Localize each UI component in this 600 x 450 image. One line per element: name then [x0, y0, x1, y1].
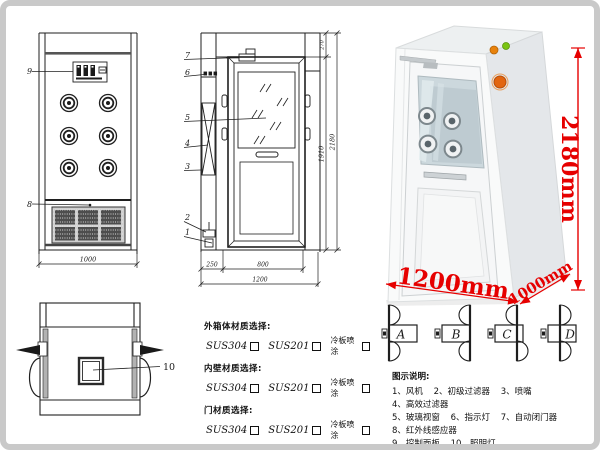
nozzle [100, 160, 117, 177]
legend-row: 5、玻璃视窗 6、指示灯 7、自动闭门器 8、红外线感应器 [392, 412, 596, 438]
orange-indicator-light [490, 46, 498, 54]
glass-hatch-marks [252, 84, 288, 144]
nozzle [61, 95, 78, 112]
legend-row: 9、控制面板 10、照明灯 [392, 438, 596, 450]
top-view-drawing: 10 [15, 296, 185, 428]
door-handle [256, 152, 278, 157]
observation-window [79, 358, 103, 384]
part-label-9: 9 [27, 67, 32, 76]
door-type-b-icon: B [434, 302, 478, 364]
door-section [222, 57, 310, 247]
front-view-part-labels: 9 8 [27, 67, 91, 209]
side-height-dimensions: 1910 2180 270 [305, 31, 341, 253]
exhaust-grille [45, 200, 131, 243]
legend-item: 8、红外线感应器 [392, 426, 457, 436]
dim-1200: 1200 [252, 277, 267, 284]
dim-800: 800 [257, 262, 269, 269]
emergency-button [494, 76, 506, 88]
front-view-drawing: 9 8 1000 [20, 26, 180, 273]
side-bottom-dimensions: 250 800 1200 [199, 250, 321, 287]
nozzle [100, 128, 117, 145]
air-shower-spec-sheet: 9 8 1000 [0, 0, 600, 450]
material-group-title: 外箱体材质选择: [204, 320, 379, 332]
material-option-label: 冷板喷涂 [330, 419, 358, 441]
door-type-a-icon: A [381, 302, 425, 364]
height-dim-label: 2180mm [556, 115, 582, 223]
material-group-title: 门材质选择: [204, 404, 379, 416]
fan-filter-column [202, 72, 217, 247]
material-option-label: SUS304 [206, 383, 247, 394]
checkbox[interactable] [362, 342, 370, 351]
part-label-3: 3 [185, 162, 190, 171]
door-type-letter: C [502, 328, 511, 342]
nozzle [100, 95, 117, 112]
part-label-8: 8 [27, 200, 32, 209]
dim-2180: 2180 [329, 134, 337, 152]
checkbox[interactable] [250, 384, 259, 393]
side-view-drawing: 7 6 5 4 3 2 1 250 80 [182, 26, 347, 293]
part-label-7: 7 [185, 51, 191, 60]
flow-arrows [16, 345, 164, 355]
green-indicator-light [503, 43, 510, 50]
side-view-part-labels: 7 6 5 4 3 2 1 [184, 51, 266, 243]
legend-row: 1、风机 2、初级过滤器 3、喷嘴 4、高效过滤器 [392, 386, 596, 412]
part-label-2: 2 [184, 213, 190, 222]
checkbox[interactable] [250, 426, 259, 435]
legend-item: 10、照明灯 [451, 439, 496, 449]
legend: 图示说明: 1、风机 2、初级过滤器 3、喷嘴 4、高效过滤器 5、玻璃视窗 6… [392, 371, 596, 450]
control-panel [73, 62, 107, 82]
legend-item: 7、自动闭门器 [501, 413, 557, 423]
cabinet-3d [388, 26, 566, 302]
material-option-label: 冷板喷涂 [330, 335, 358, 357]
product-photo: 2180mm 1200mm 1000mm [372, 6, 594, 310]
material-option-label: SUS201 [268, 383, 309, 394]
part-label-1: 1 [185, 228, 190, 237]
material-options-row: SUS304 SUS201 冷板喷涂 [206, 377, 379, 399]
legend-item: 4、高效过滤器 [392, 400, 448, 410]
part-label-10: 10 [163, 362, 175, 373]
material-option-label: SUS201 [268, 341, 309, 352]
legend-title: 图示说明: [392, 371, 596, 384]
material-options-row: SUS304 SUS201 冷板喷涂 [206, 335, 379, 357]
nozzles-front [61, 95, 117, 177]
material-options-row: SUS304 SUS201 冷板喷涂 [206, 419, 379, 441]
door-type-letter: D [564, 328, 575, 342]
checkbox[interactable] [312, 426, 321, 435]
dim-270: 270 [320, 39, 326, 50]
door-type-c-icon: C [487, 302, 531, 364]
material-option-label: SUS201 [268, 425, 309, 436]
material-option-label: SUS304 [206, 341, 247, 352]
dim-1910: 1910 [318, 146, 326, 163]
door-glass [238, 72, 295, 148]
dim-1000: 1000 [80, 256, 97, 264]
material-option-label: SUS304 [206, 425, 247, 436]
checkbox[interactable] [312, 342, 321, 351]
door-type-letter: A [396, 328, 406, 342]
nozzle [61, 128, 78, 145]
material-option-label: 冷板喷涂 [330, 377, 358, 399]
material-group-title: 内壁材质选择: [204, 362, 379, 374]
legend-item: 6、指示灯 [451, 413, 490, 423]
checkbox[interactable] [312, 384, 321, 393]
legend-item: 2、初级过滤器 [434, 387, 490, 397]
checkbox[interactable] [250, 342, 259, 351]
front-width-dimension: 1000 [37, 254, 140, 268]
dim-250: 250 [205, 262, 218, 269]
checkbox[interactable] [362, 384, 370, 393]
nozzle [61, 160, 78, 177]
material-selection: 外箱体材质选择: SUS304 SUS201 冷板喷涂 内壁材质选择: SUS3… [204, 317, 379, 446]
legend-item: 3、喷嘴 [501, 387, 532, 397]
door-type-d-icon: D [540, 302, 584, 364]
legend-item: 5、玻璃视窗 [392, 413, 440, 423]
legend-item: 1、风机 [392, 387, 423, 397]
checkbox[interactable] [362, 426, 370, 435]
door-type-options: A B C [381, 302, 584, 364]
part-label-5: 5 [185, 113, 190, 122]
door-glass-3d [418, 76, 484, 168]
legend-item: 9、控制面板 [392, 439, 440, 449]
door-type-letter: B [451, 328, 461, 342]
